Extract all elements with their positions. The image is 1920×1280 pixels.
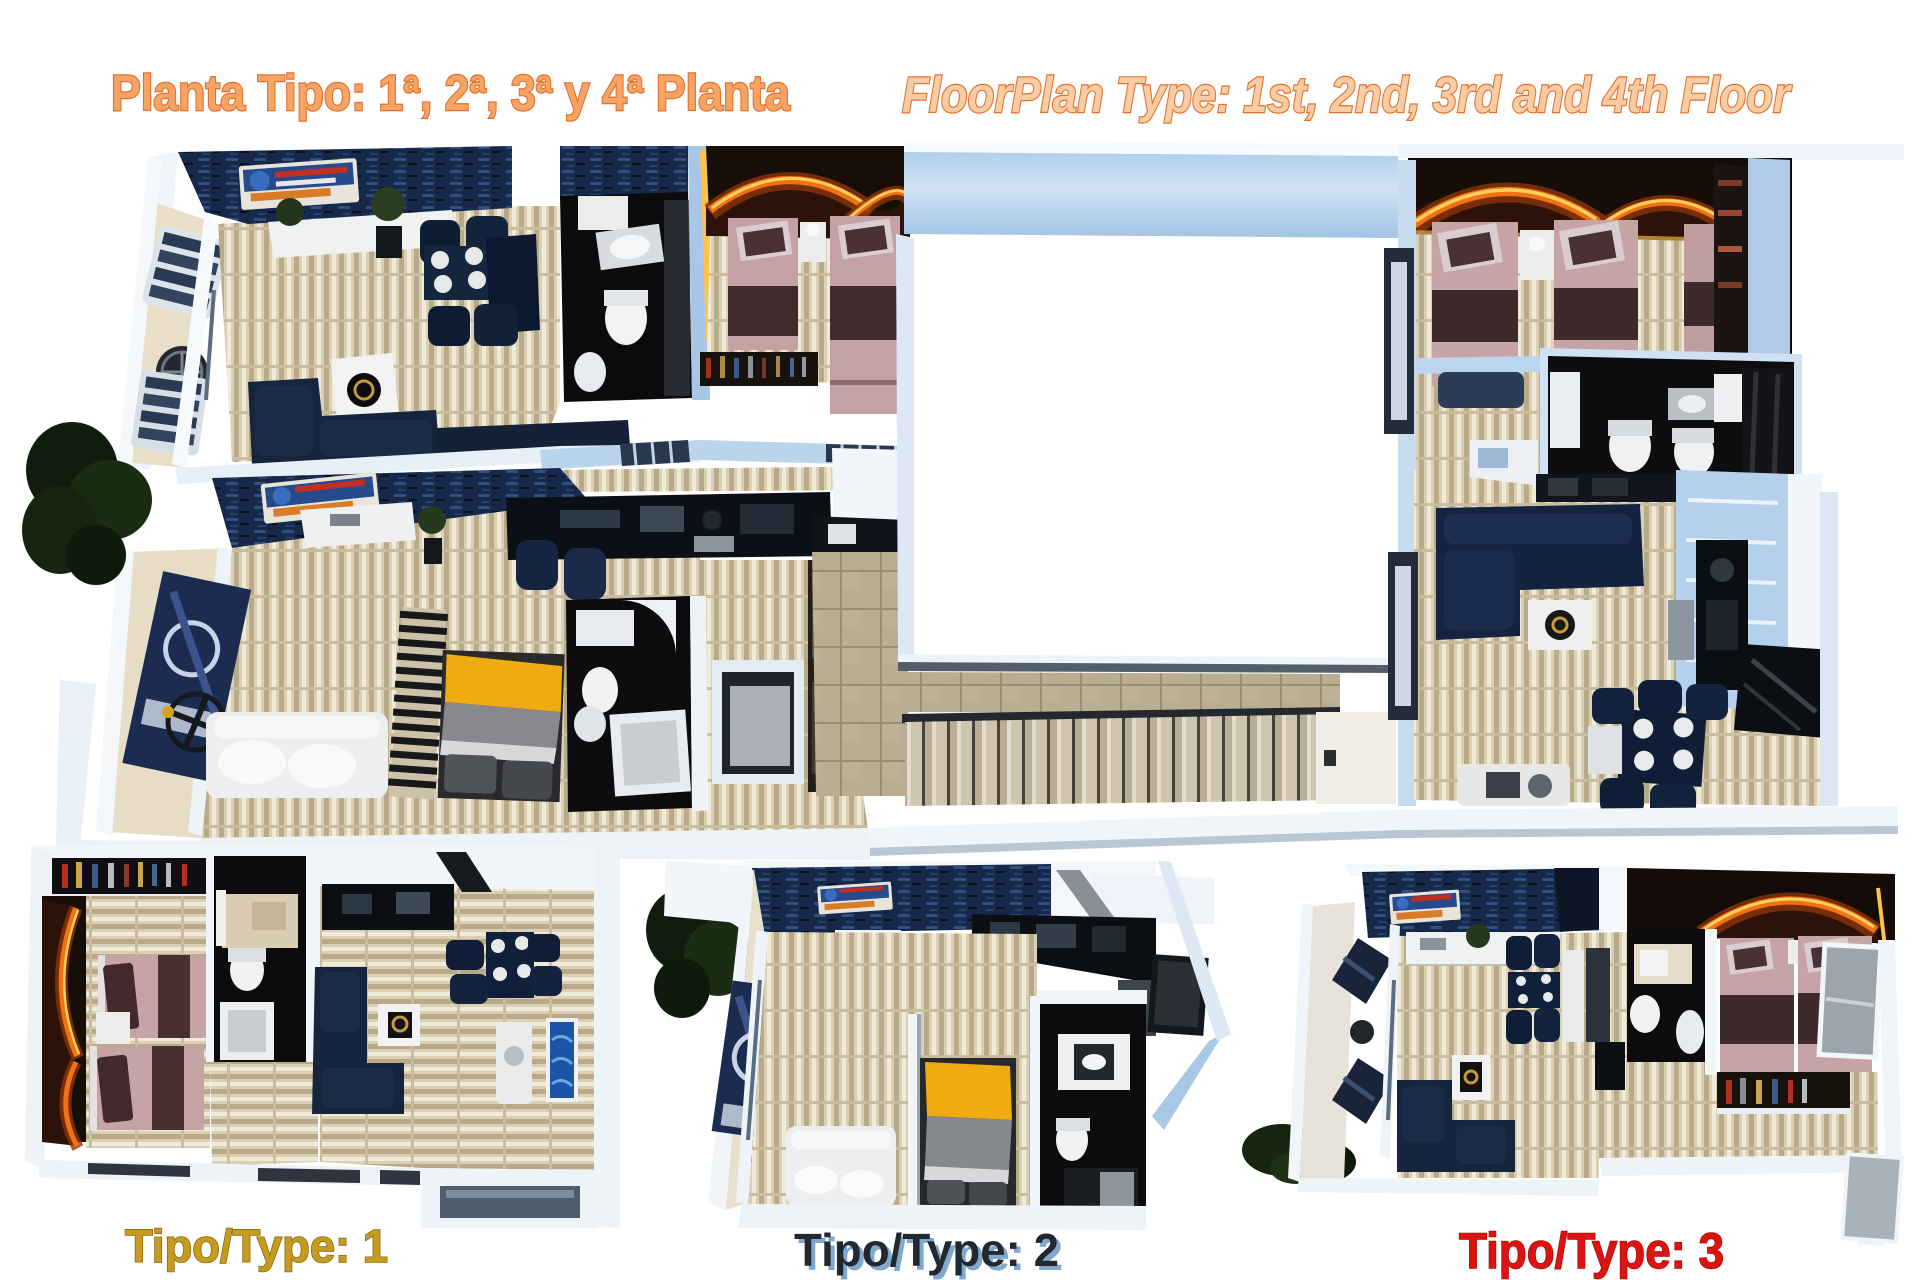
svg-text:Planta Tipo: 1ª, 2ª, 3ª y 4ª P: Planta Tipo: 1ª, 2ª, 3ª y 4ª Planta [111, 65, 791, 121]
svg-text:Tipo/Type: 3: Tipo/Type: 3 [1459, 1223, 1724, 1279]
svg-text:FloorPlan Type: 1st, 2nd, 3rd: FloorPlan Type: 1st, 2nd, 3rd and 4th Fl… [902, 67, 1792, 123]
svg-text:Tipo/Type: 2: Tipo/Type: 2 [794, 1224, 1059, 1276]
svg-text:Tipo/Type: 1: Tipo/Type: 1 [125, 1220, 388, 1272]
